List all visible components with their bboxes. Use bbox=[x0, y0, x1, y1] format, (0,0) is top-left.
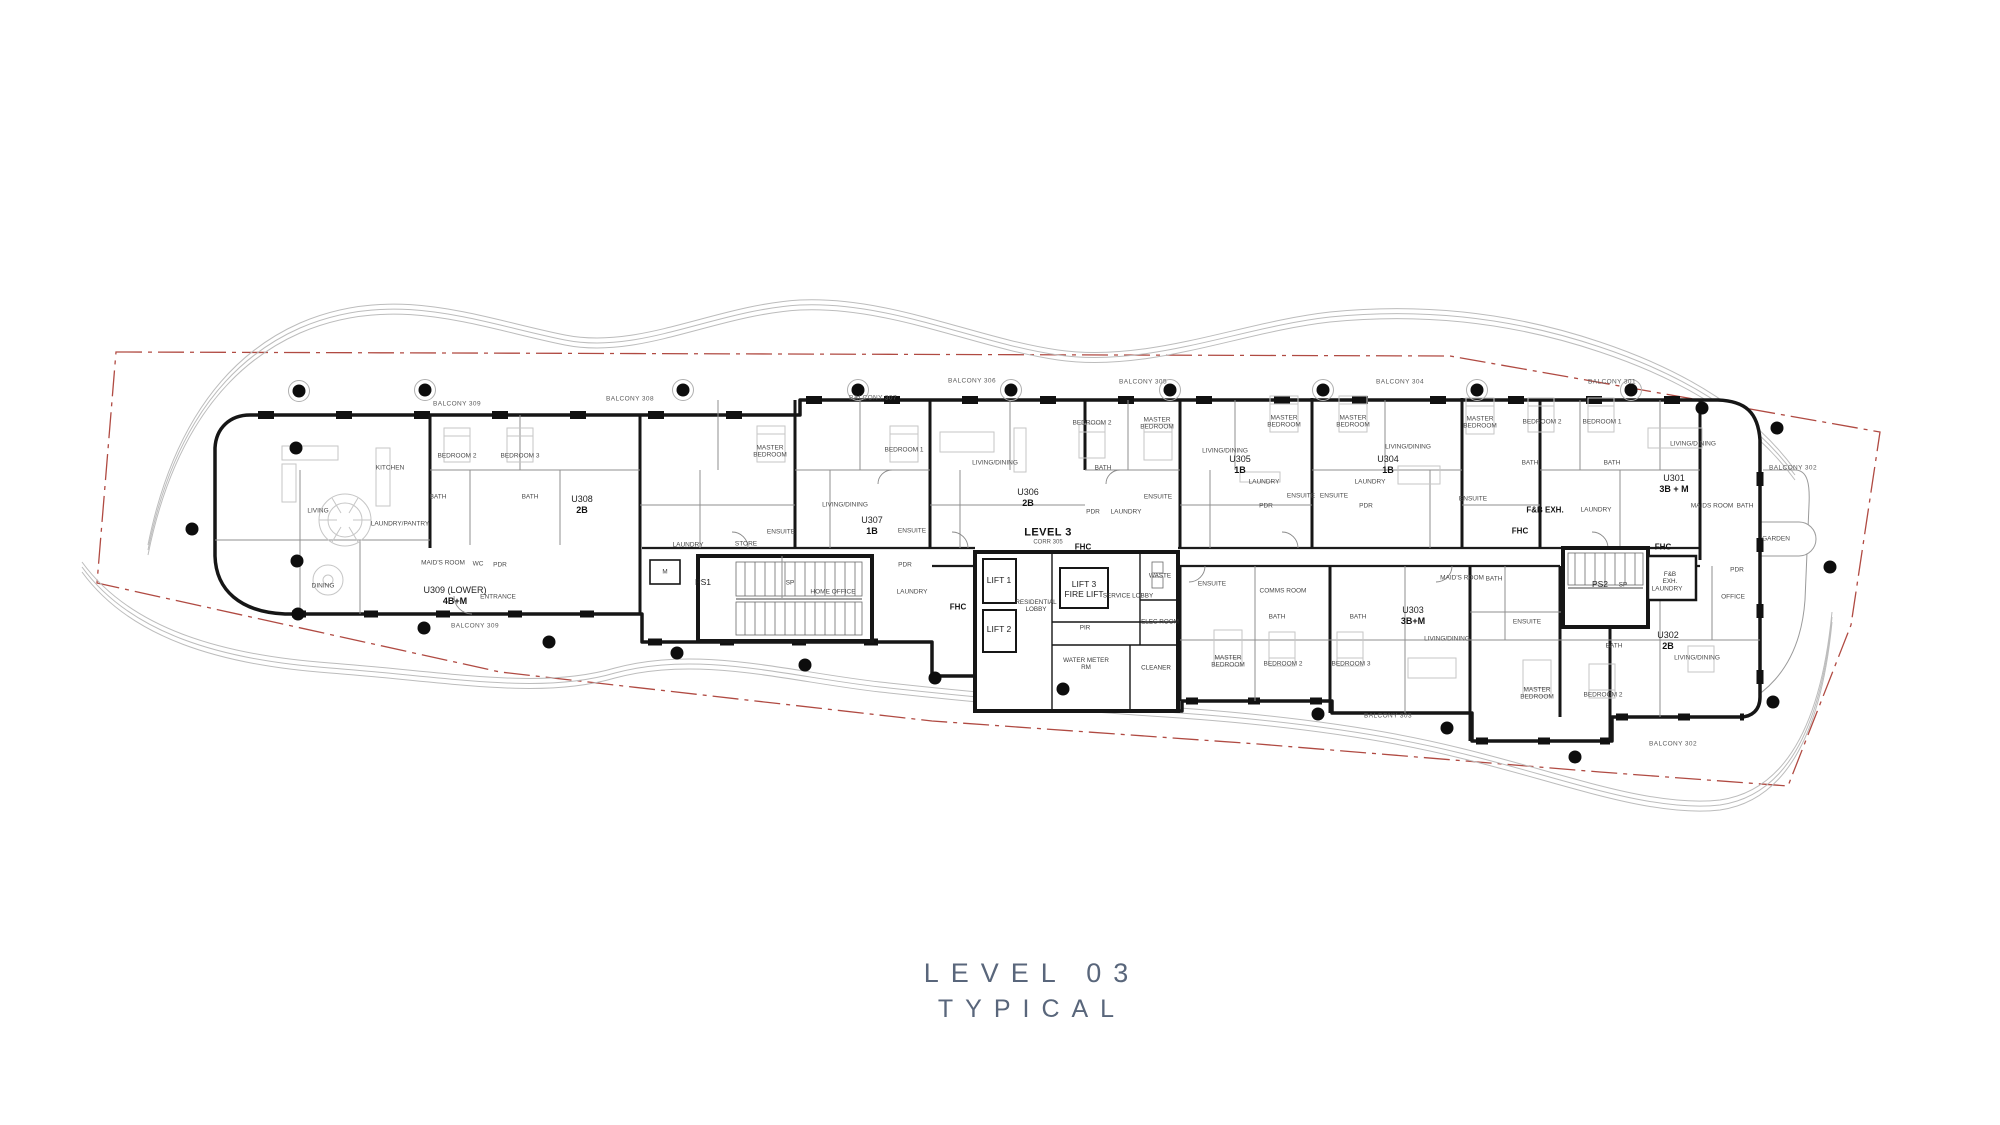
lift-core bbox=[975, 552, 1178, 711]
floor-plan-drawing bbox=[0, 0, 2000, 1125]
floor-plan-sheet: U309 (LOWER)4B+MU3082BU3071BU3062BU3051B… bbox=[0, 0, 2000, 1125]
level-subtitle: TYPICAL bbox=[924, 995, 1141, 1024]
level-title: LEVEL 03 bbox=[924, 958, 1141, 989]
sheet-title: LEVEL 03 TYPICAL bbox=[924, 958, 1141, 1024]
